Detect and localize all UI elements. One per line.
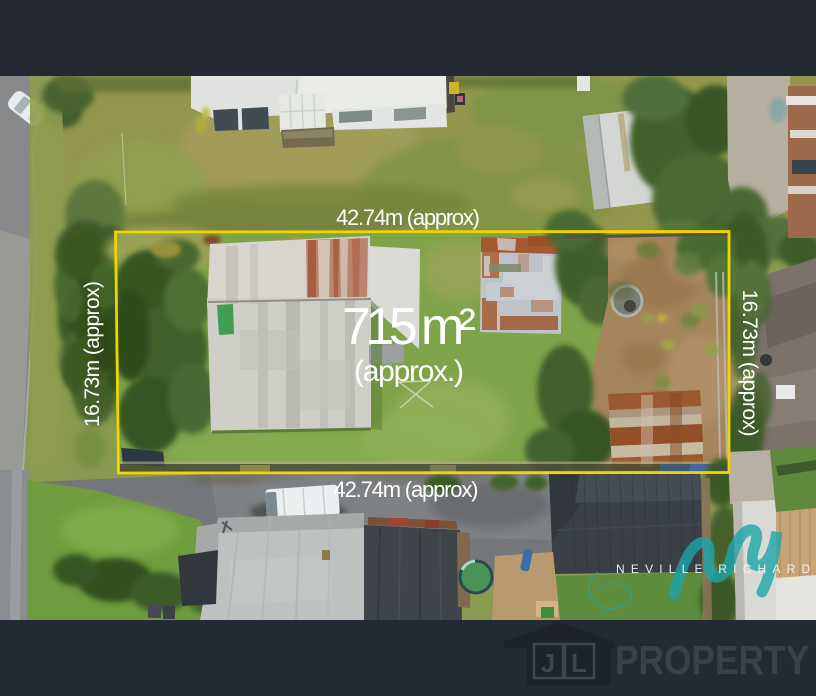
svg-text:16.73m (approx): 16.73m (approx) xyxy=(738,290,761,437)
svg-text:NEVILLE RICHARDS: NEVILLE RICHARDS xyxy=(616,562,816,576)
svg-text:L: L xyxy=(571,648,587,678)
svg-text:(approx.): (approx.) xyxy=(354,355,464,388)
svg-text:715 m²: 715 m² xyxy=(342,298,476,356)
svg-text:J: J xyxy=(541,648,555,678)
svg-text:PROPERTY: PROPERTY xyxy=(615,637,809,683)
svg-text:42.74m (approx): 42.74m (approx) xyxy=(334,477,479,502)
svg-text:16.73m (approx): 16.73m (approx) xyxy=(81,281,104,427)
svg-text:42.74m (approx): 42.74m (approx) xyxy=(336,205,480,230)
